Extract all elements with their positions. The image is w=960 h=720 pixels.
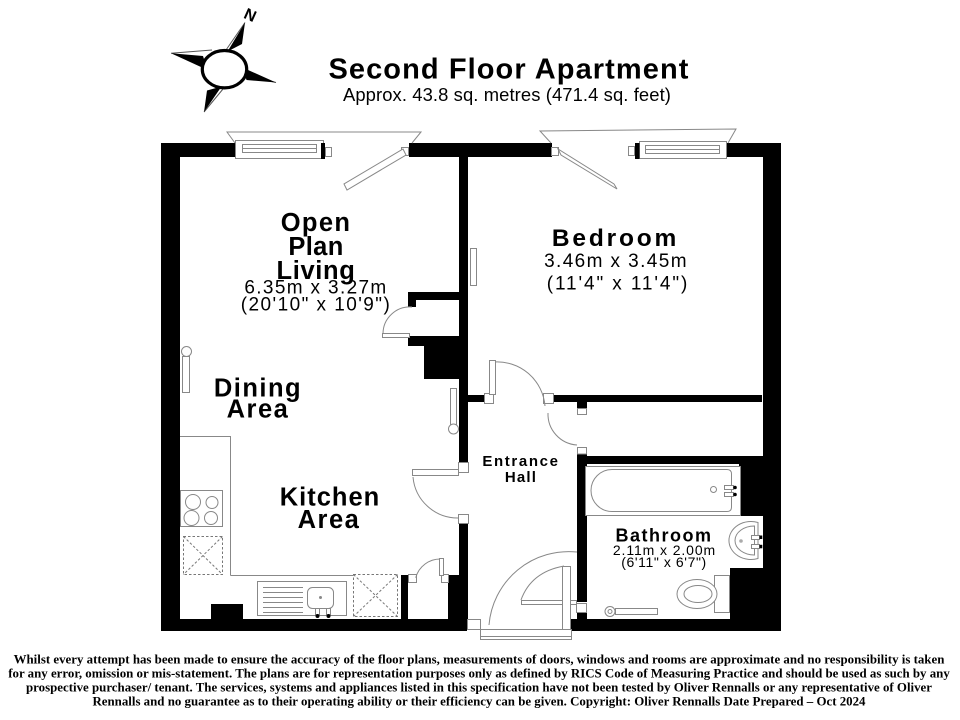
svg-text:Bedroom: Bedroom [552,225,679,252]
svg-text:Whilst every attempt has been: Whilst every attempt has been made to en… [14,653,945,667]
svg-text:(6'11" x 6'7"): (6'11" x 6'7") [621,554,707,570]
svg-text:(11'4" x 11'4"): (11'4" x 11'4") [547,274,690,295]
svg-text:Second Floor Apartment: Second Floor Apartment [328,54,689,86]
svg-text:Hall: Hall [505,469,537,486]
svg-text:Area: Area [298,506,361,534]
svg-text:Area: Area [227,396,290,424]
svg-text:3.46m x 3.45m: 3.46m x 3.45m [544,251,688,272]
svg-text:Entrance: Entrance [482,453,559,470]
svg-text:Approx. 43.8 sq. metres (471.4: Approx. 43.8 sq. metres (471.4 sq. feet) [343,84,671,105]
svg-text:for any error, omission or mis: for any error, omission or mis-statement… [8,667,950,681]
svg-text:(20'10" x 10'9"): (20'10" x 10'9") [241,295,391,316]
svg-text:Rennalls and no guarantee as t: Rennalls and no guarantee as to their op… [92,695,866,709]
svg-text:prospective purchaser/ tenant.: prospective purchaser/ tenant. The servi… [26,681,932,695]
